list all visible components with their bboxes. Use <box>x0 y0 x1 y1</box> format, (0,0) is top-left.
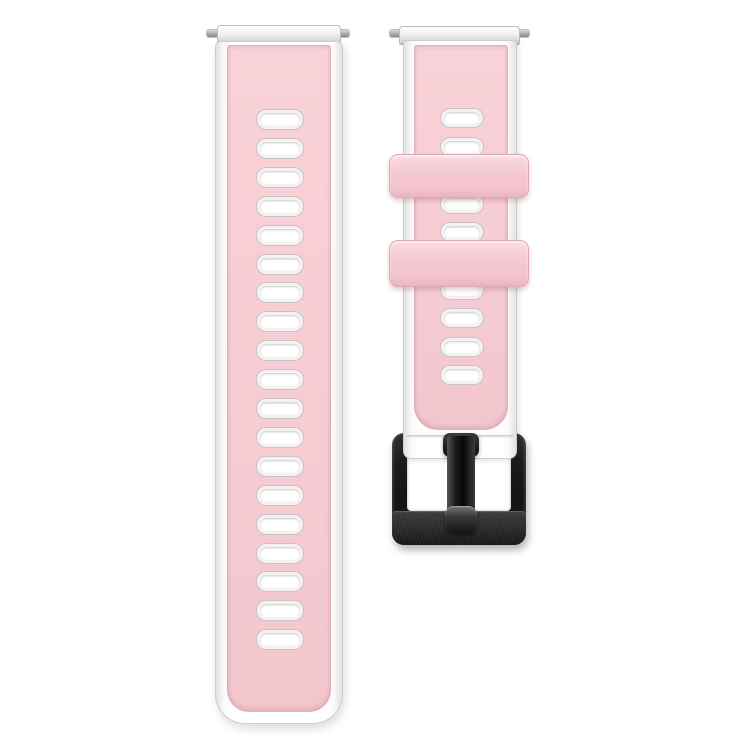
vent-hole <box>441 223 483 241</box>
right-strap-pink-face <box>414 45 508 430</box>
vent-hole <box>441 138 483 156</box>
vent-hole <box>441 309 483 327</box>
watch-strap-product-photo <box>0 0 750 750</box>
right-strap <box>0 0 750 750</box>
vent-hole <box>441 338 483 356</box>
vent-hole <box>441 366 483 384</box>
vent-hole <box>441 109 483 127</box>
keeper-loop <box>389 154 529 198</box>
keeper-loop <box>389 240 529 287</box>
buckle-tongue-tip <box>445 506 477 534</box>
